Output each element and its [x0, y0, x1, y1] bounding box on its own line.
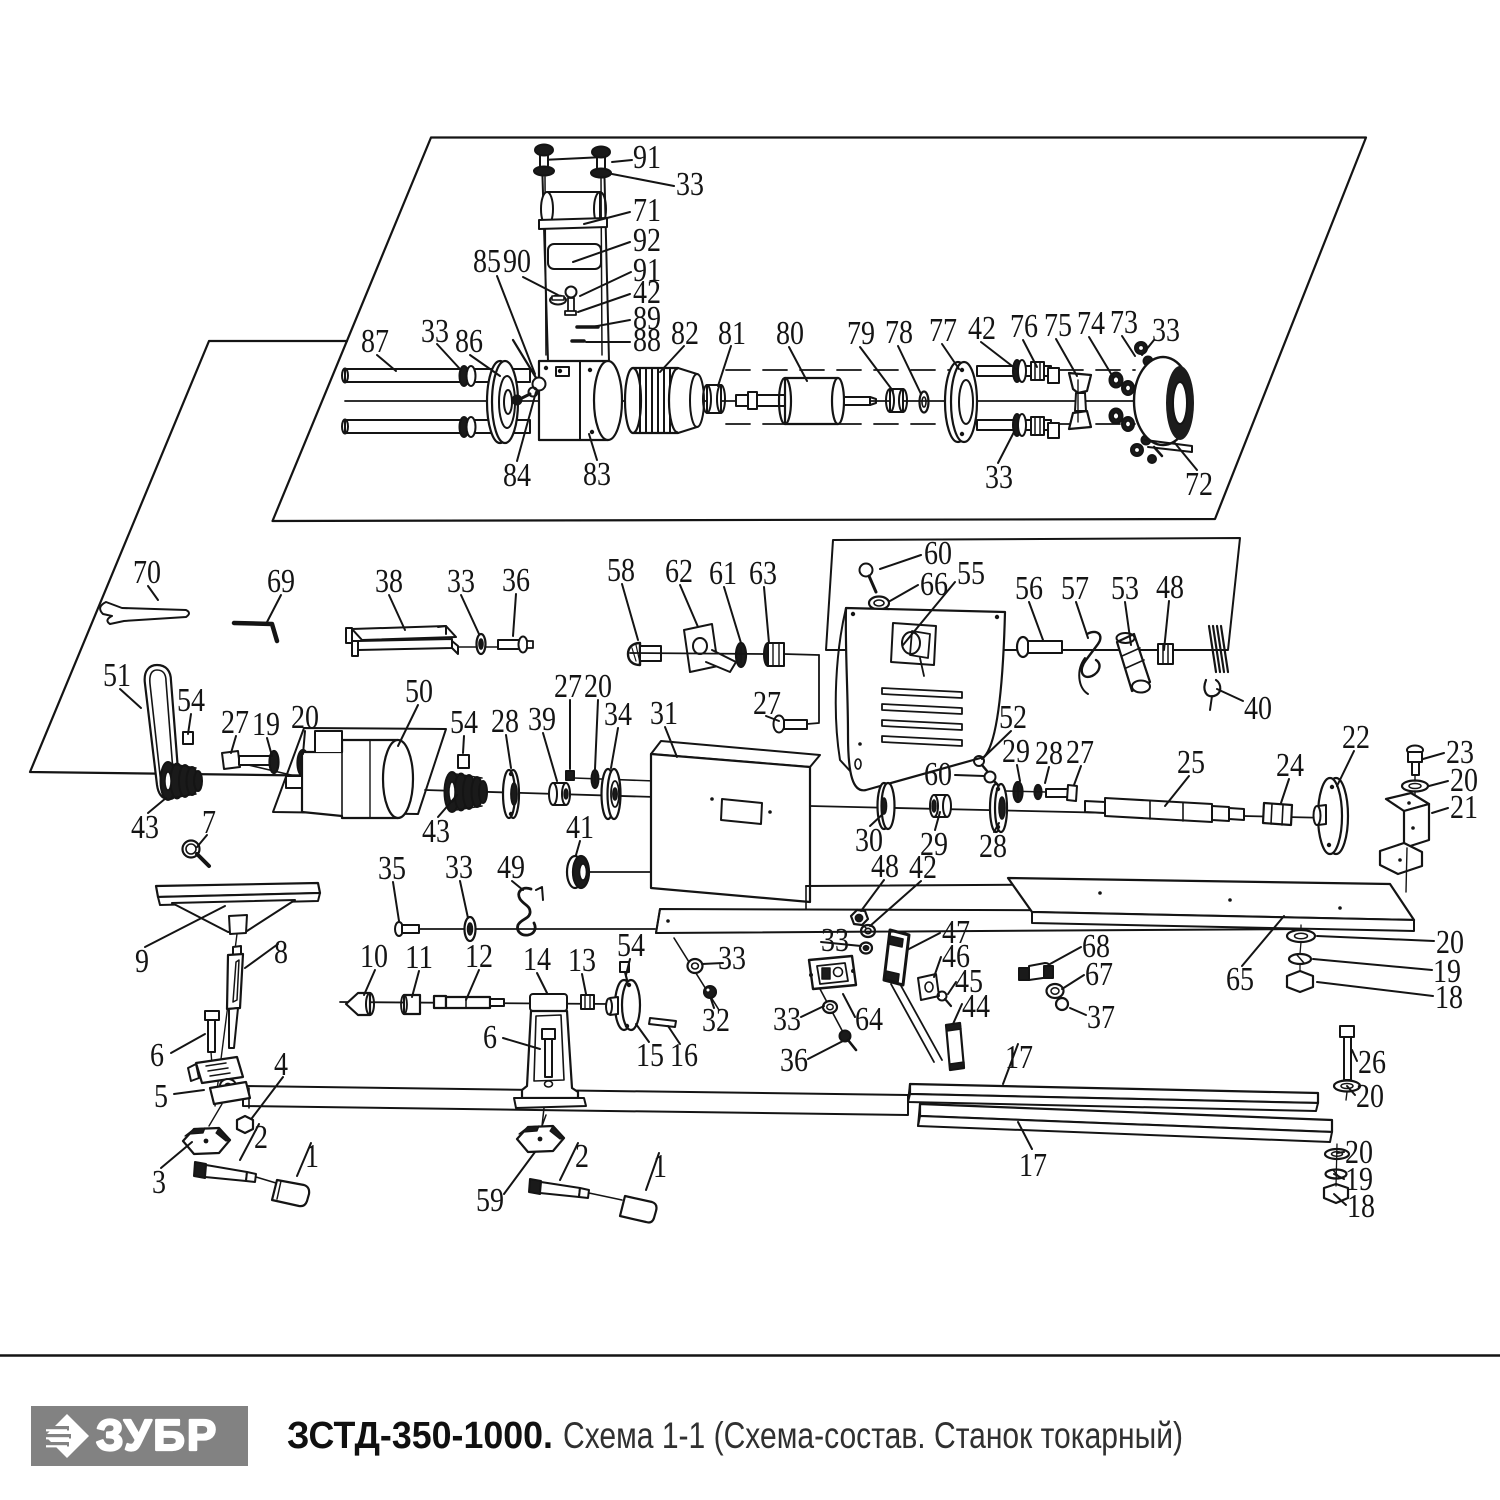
svg-text:55: 55 [957, 555, 985, 592]
svg-text:12: 12 [465, 938, 493, 975]
svg-text:27: 27 [753, 685, 781, 722]
svg-text:6: 6 [150, 1037, 164, 1074]
svg-text:58: 58 [607, 552, 635, 589]
svg-text:32: 32 [702, 1002, 730, 1039]
svg-text:18: 18 [1435, 979, 1463, 1016]
svg-text:33: 33 [1152, 312, 1180, 349]
svg-text:33: 33 [676, 166, 704, 203]
svg-text:33: 33 [985, 459, 1013, 496]
svg-text:41: 41 [566, 809, 594, 846]
svg-text:4: 4 [274, 1046, 288, 1083]
svg-text:20: 20 [1356, 1078, 1384, 1115]
svg-text:7: 7 [202, 804, 216, 841]
svg-text:79: 79 [847, 315, 875, 352]
svg-text:59: 59 [476, 1182, 504, 1219]
svg-text:83: 83 [583, 456, 611, 493]
svg-text:1: 1 [653, 1148, 667, 1185]
svg-text:85: 85 [473, 243, 501, 280]
svg-text:2: 2 [254, 1119, 268, 1156]
svg-text:40: 40 [1244, 690, 1272, 727]
svg-text:61: 61 [709, 555, 737, 592]
svg-text:6: 6 [483, 1019, 497, 1056]
svg-text:16: 16 [670, 1037, 698, 1074]
svg-text:73: 73 [1110, 304, 1138, 341]
svg-text:34: 34 [604, 696, 632, 733]
svg-text:76: 76 [1010, 308, 1038, 345]
svg-text:28: 28 [979, 828, 1007, 865]
svg-text:10: 10 [360, 938, 388, 975]
svg-text:48: 48 [1156, 569, 1184, 606]
svg-text:42: 42 [968, 310, 996, 347]
svg-text:28: 28 [491, 703, 519, 740]
svg-text:29: 29 [1002, 733, 1030, 770]
svg-text:62: 62 [665, 553, 693, 590]
svg-text:1: 1 [305, 1138, 319, 1175]
svg-text:22: 22 [1342, 719, 1370, 756]
svg-text:17: 17 [1019, 1147, 1047, 1184]
svg-text:67: 67 [1085, 956, 1113, 993]
svg-text:91: 91 [633, 139, 661, 176]
svg-text:42: 42 [909, 849, 937, 886]
svg-text:13: 13 [568, 942, 596, 979]
svg-text:54: 54 [177, 682, 205, 719]
svg-text:5: 5 [154, 1078, 168, 1115]
svg-text:31: 31 [650, 695, 678, 732]
svg-text:2: 2 [575, 1138, 589, 1175]
svg-text:33: 33 [421, 313, 449, 350]
svg-text:26: 26 [1358, 1044, 1386, 1081]
svg-text:81: 81 [718, 315, 746, 352]
svg-text:66: 66 [920, 566, 948, 603]
svg-text:70: 70 [133, 554, 161, 591]
svg-text:54: 54 [450, 704, 478, 741]
svg-text:18: 18 [1347, 1188, 1375, 1225]
svg-text:33: 33 [718, 940, 746, 977]
svg-text:90: 90 [503, 243, 531, 280]
svg-text:87: 87 [361, 323, 389, 360]
svg-text:72: 72 [1185, 466, 1213, 503]
svg-text:27: 27 [1066, 734, 1094, 771]
svg-text:50: 50 [405, 673, 433, 710]
svg-text:78: 78 [885, 314, 913, 351]
svg-text:27: 27 [221, 704, 249, 741]
svg-text:19: 19 [252, 706, 280, 743]
svg-text:35: 35 [378, 850, 406, 887]
svg-text:Схема 1-1 (Схема-состав. Стано: Схема 1-1 (Схема-состав. Станок токарный… [563, 1415, 1183, 1456]
svg-text:33: 33 [445, 849, 473, 886]
svg-text:33: 33 [447, 563, 475, 600]
svg-text:ЗУБР: ЗУБР [96, 1411, 218, 1460]
svg-text:9: 9 [135, 943, 149, 980]
svg-text:20: 20 [291, 699, 319, 736]
svg-text:86: 86 [455, 323, 483, 360]
svg-text:33: 33 [821, 922, 849, 959]
svg-text:52: 52 [999, 699, 1027, 736]
svg-text:75: 75 [1044, 307, 1072, 344]
svg-text:44: 44 [962, 988, 990, 1025]
svg-text:24: 24 [1276, 747, 1304, 784]
svg-text:36: 36 [502, 562, 530, 599]
svg-text:80: 80 [776, 315, 804, 352]
svg-text:54: 54 [617, 927, 645, 964]
svg-text:57: 57 [1061, 570, 1089, 607]
svg-text:25: 25 [1177, 744, 1205, 781]
svg-text:14: 14 [523, 941, 551, 978]
svg-text:43: 43 [422, 813, 450, 850]
svg-text:3: 3 [152, 1164, 166, 1201]
svg-text:15: 15 [636, 1037, 664, 1074]
svg-text:39: 39 [528, 701, 556, 738]
svg-text:56: 56 [1015, 570, 1043, 607]
svg-text:60: 60 [924, 756, 952, 793]
svg-text:63: 63 [749, 555, 777, 592]
svg-text:27: 27 [554, 668, 582, 705]
svg-text:82: 82 [671, 315, 699, 352]
svg-text:43: 43 [131, 809, 159, 846]
svg-text:ЗСТД-350-1000.: ЗСТД-350-1000. [287, 1415, 553, 1457]
svg-text:49: 49 [497, 849, 525, 886]
svg-text:69: 69 [267, 563, 295, 600]
svg-text:38: 38 [375, 563, 403, 600]
svg-text:33: 33 [773, 1001, 801, 1038]
svg-text:88: 88 [633, 322, 661, 359]
svg-text:53: 53 [1111, 570, 1139, 607]
svg-text:65: 65 [1226, 961, 1254, 998]
svg-text:28: 28 [1035, 735, 1063, 772]
svg-text:64: 64 [855, 1001, 883, 1038]
svg-text:21: 21 [1450, 789, 1478, 826]
svg-text:74: 74 [1077, 305, 1105, 342]
svg-text:77: 77 [929, 312, 957, 349]
svg-text:37: 37 [1087, 999, 1115, 1036]
svg-text:84: 84 [503, 457, 531, 494]
svg-text:11: 11 [405, 939, 433, 976]
svg-text:51: 51 [103, 657, 131, 694]
svg-text:36: 36 [780, 1042, 808, 1079]
svg-text:48: 48 [871, 848, 899, 885]
svg-text:17: 17 [1005, 1039, 1033, 1076]
svg-text:8: 8 [274, 934, 288, 971]
